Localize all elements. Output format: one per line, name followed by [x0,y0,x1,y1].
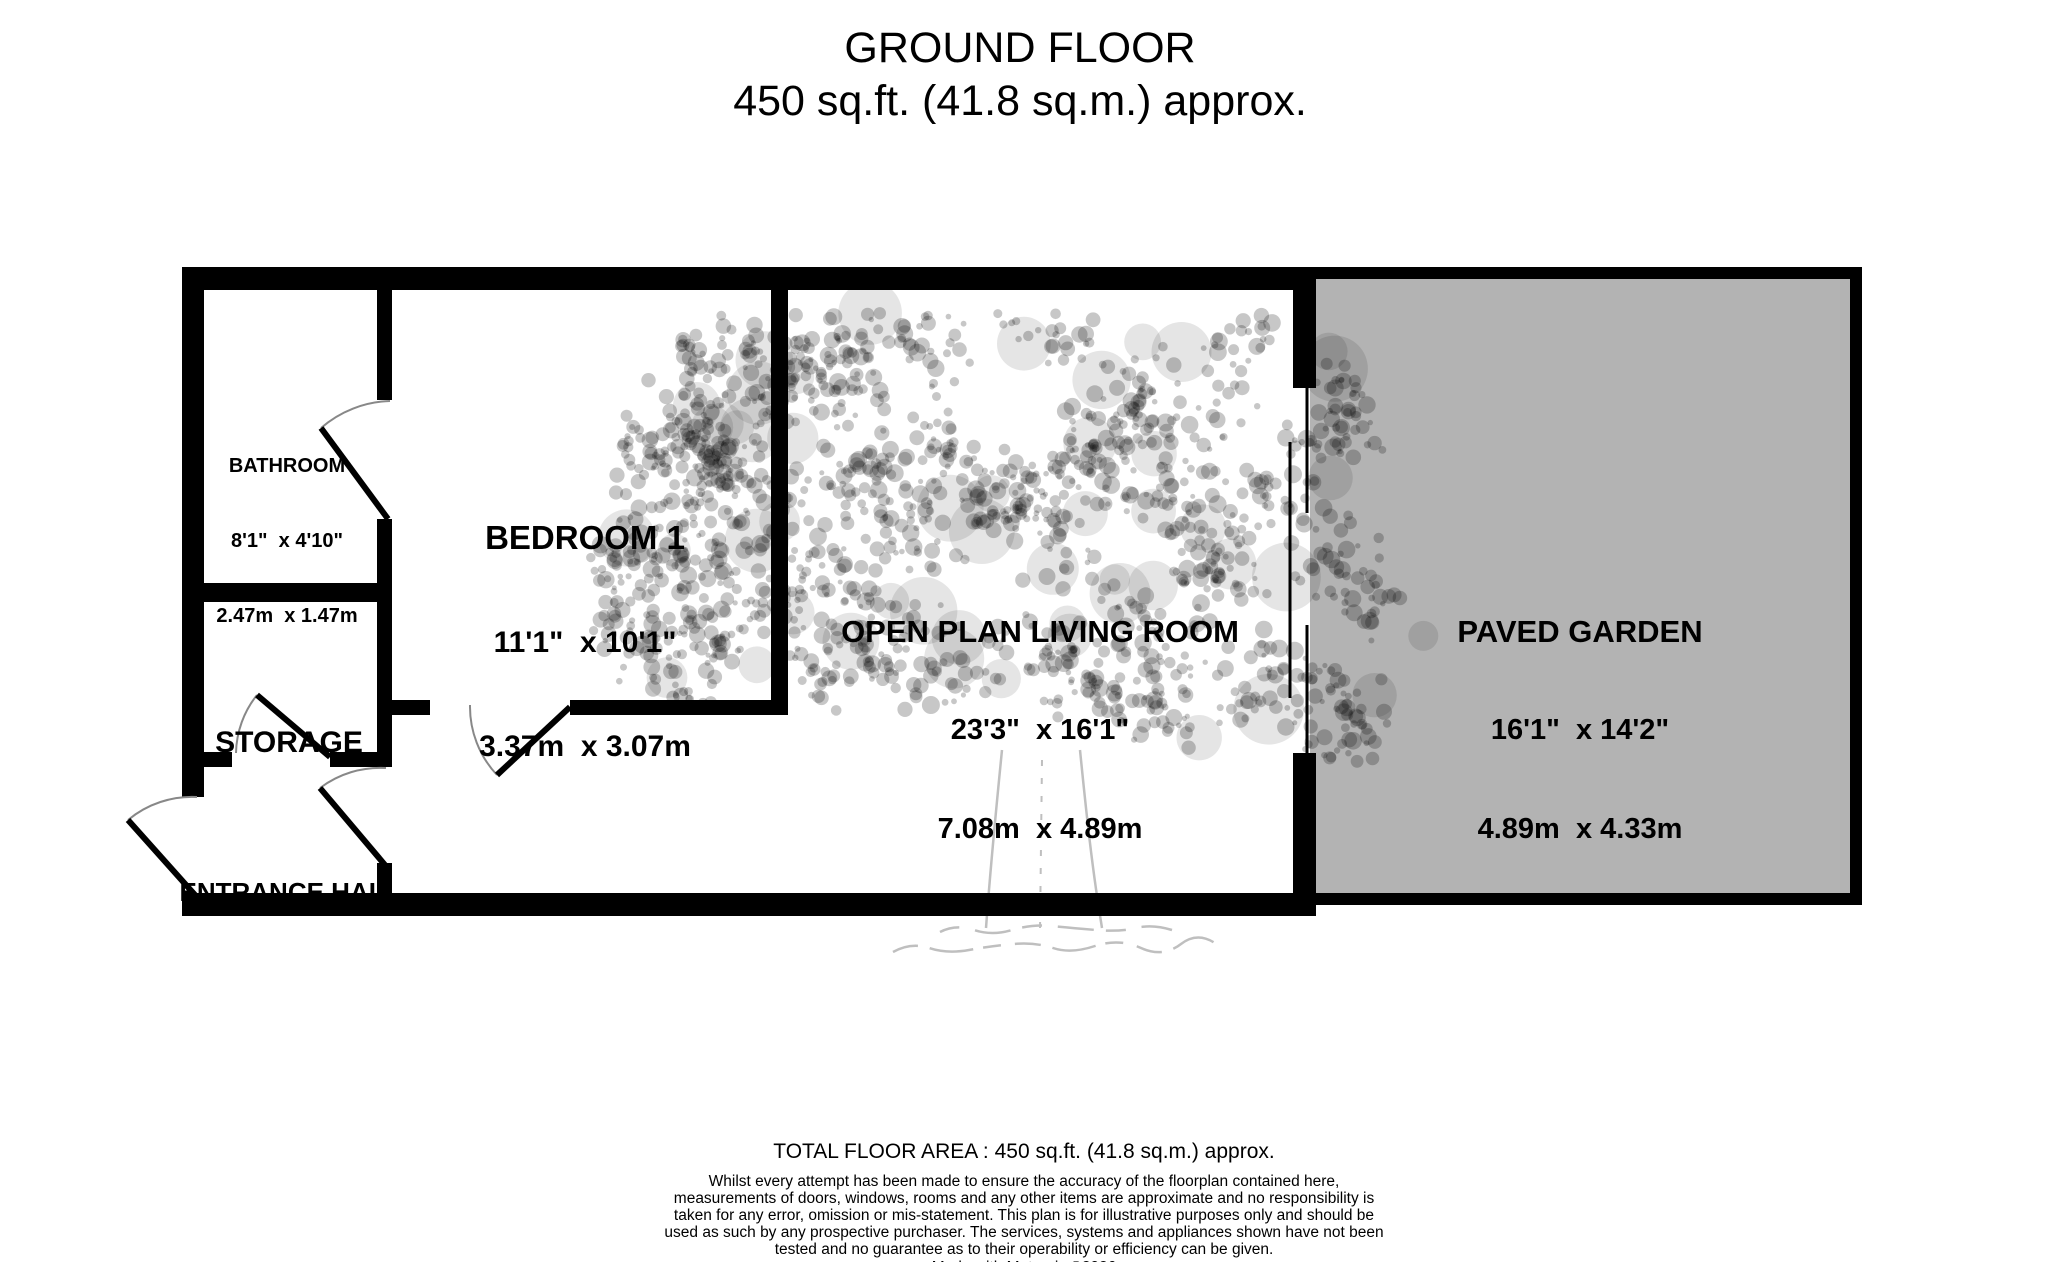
room-name: ENTRANCE HALL [180,878,401,906]
room-label-living-room: OPEN PLAN LIVING ROOM 23'3" x 16'1" 7.08… [841,548,1239,912]
plan-title-line1: GROUND FLOOR [733,22,1307,75]
room-dims-metric: 3.37m x 3.07m [479,731,691,763]
room-dims-imperial: 11'1" x 10'1" [479,627,691,659]
room-label-paved-garden: PAVED GARDEN 16'1" x 14'2" 4.89m x 4.33m [1457,548,1702,912]
plan-title-line2: 450 sq.ft. (41.8 sq.m.) approx. [733,75,1307,128]
plan-title: GROUND FLOOR 450 sq.ft. (41.8 sq.m.) app… [733,22,1307,128]
room-name: BATHROOM [216,454,357,479]
room-label-bathroom: BATHROOM 8'1" x 4'10" 2.47m x 1.47m [216,404,357,679]
room-dims-metric: 2.47m x 1.47m [216,604,357,629]
room-dims-imperial: 16'1" x 14'2" [1457,715,1702,746]
room-dims-metric: 7.08m x 4.89m [841,814,1239,845]
patio-sliding-door [1290,388,1307,753]
footer: TOTAL FLOOR AREA : 450 sq.ft. (41.8 sq.m… [644,1140,1404,1262]
room-name: STORAGE [215,727,363,759]
door-swing-arc [128,797,197,820]
room-name: OPEN PLAN LIVING ROOM [841,615,1239,648]
room-name: PAVED GARDEN [1457,615,1702,648]
floorplan-canvas: GROUND FLOOR 450 sq.ft. (41.8 sq.m.) app… [0,0,2048,1262]
room-dims-imperial: 8'1" x 4'10" [216,529,357,554]
room-name: BEDROOM 1 [479,520,691,556]
room-label-entrance-hall: ENTRANCE HALL [180,822,401,962]
room-dims-imperial: 23'3" x 16'1" [841,715,1239,746]
disclaimer-text: Whilst every attempt has been made to en… [658,1173,1390,1258]
room-dims-metric: 4.89m x 4.33m [1457,814,1702,845]
total-floor-area: TOTAL FLOOR AREA : 450 sq.ft. (41.8 sq.m… [644,1140,1404,1164]
room-label-storage: STORAGE [215,662,363,824]
room-label-bedroom1: BEDROOM 1 11'1" x 10'1" 3.37m x 3.07m [479,449,691,834]
